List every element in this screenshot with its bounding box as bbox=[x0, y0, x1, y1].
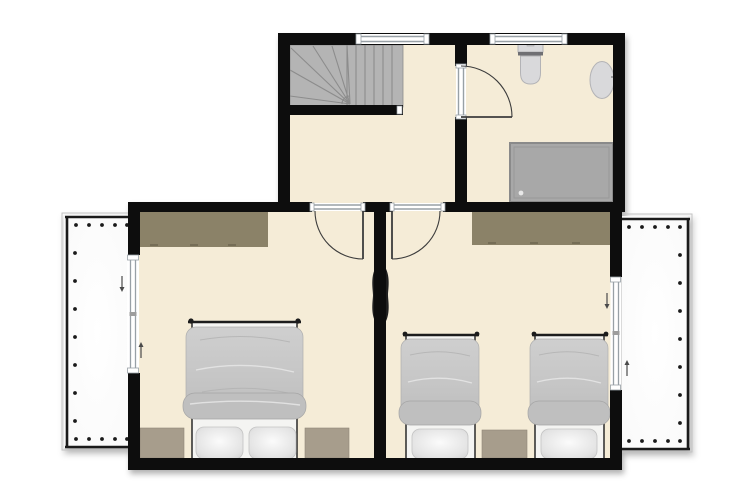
wall-left-above-slider bbox=[128, 202, 140, 255]
wall-bedrooms-top-right bbox=[443, 202, 622, 212]
wall-bath-divider-lower bbox=[455, 117, 467, 212]
wall-upper-right bbox=[613, 33, 625, 212]
double-bed-pillow-1 bbox=[196, 427, 243, 459]
wardrobe-left bbox=[138, 210, 268, 247]
single-bed-1 bbox=[399, 332, 481, 462]
single-bed-1-pillow bbox=[412, 429, 468, 459]
wall-bath-divider-upper bbox=[455, 45, 467, 66]
wall-under-stairs bbox=[278, 105, 403, 115]
single-bed-2 bbox=[528, 332, 610, 462]
shower-drain bbox=[519, 191, 524, 196]
wall-bedrooms-top-stub bbox=[363, 202, 392, 212]
toilet bbox=[518, 40, 543, 84]
bathroom-window bbox=[490, 34, 567, 44]
balcony-left bbox=[62, 213, 136, 450]
wall-under-stairs-endcap bbox=[397, 106, 402, 114]
wall-upper-left bbox=[278, 33, 290, 212]
single-bed-2-pillow bbox=[541, 429, 597, 459]
wall-right-above-slider bbox=[610, 202, 622, 277]
wardrobe-right bbox=[472, 210, 618, 245]
wall-left-below-slider bbox=[128, 373, 140, 470]
wall-upper-top bbox=[278, 33, 625, 45]
single-bed-1-fold bbox=[399, 401, 481, 425]
wall-bedrooms-top-left bbox=[128, 202, 312, 212]
double-bed-fold bbox=[183, 393, 306, 419]
hall-window bbox=[356, 34, 429, 44]
double-bed-pillow-2 bbox=[249, 427, 296, 459]
nightstand-left-2 bbox=[305, 428, 349, 458]
balcony-right-floor bbox=[622, 216, 688, 450]
wall-bottom bbox=[128, 458, 622, 470]
single-bed-2-fold bbox=[528, 401, 610, 425]
wall-right-below-slider bbox=[610, 390, 622, 470]
wall-center-divider bbox=[374, 212, 386, 458]
balcony-left-floor bbox=[64, 215, 130, 448]
balcony-right bbox=[619, 214, 692, 452]
staircase bbox=[290, 45, 403, 107]
double-bed bbox=[183, 318, 306, 462]
floorplan-canvas bbox=[0, 0, 755, 504]
floorplan-svg bbox=[0, 0, 755, 504]
nightstand-left-1 bbox=[140, 428, 184, 458]
shower bbox=[510, 143, 613, 202]
nightstand-right bbox=[482, 430, 527, 458]
